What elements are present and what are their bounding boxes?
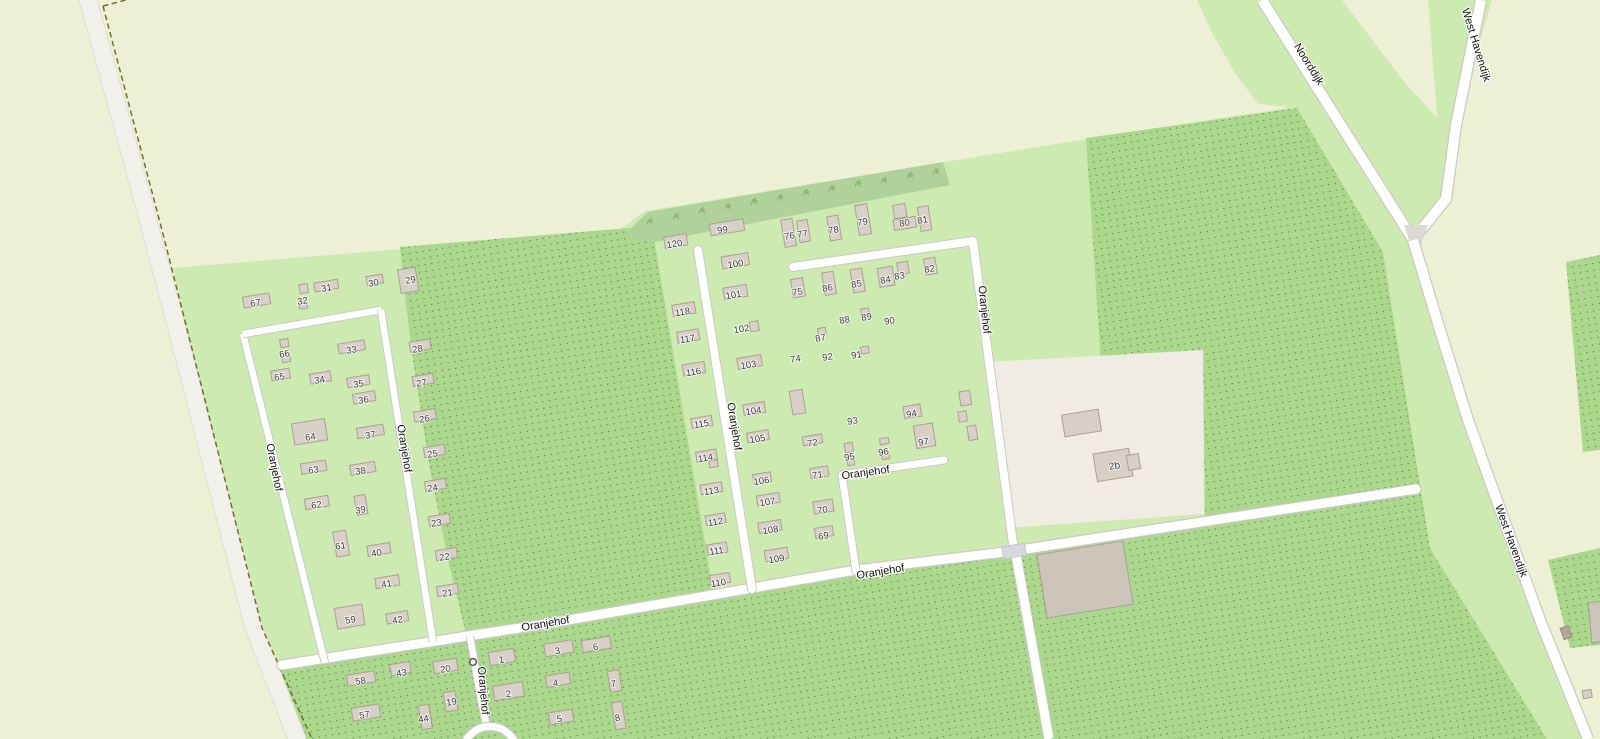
svg-text:70: 70 xyxy=(816,504,828,517)
svg-text:81: 81 xyxy=(916,214,928,227)
svg-text:26: 26 xyxy=(418,413,430,426)
svg-text:89: 89 xyxy=(860,311,872,324)
svg-text:28: 28 xyxy=(411,343,423,356)
svg-text:76: 76 xyxy=(783,230,795,243)
svg-text:77: 77 xyxy=(796,228,808,241)
svg-text:40: 40 xyxy=(370,547,382,560)
svg-text:39: 39 xyxy=(354,504,366,517)
svg-text:94: 94 xyxy=(905,408,917,421)
svg-text:58: 58 xyxy=(354,675,366,688)
svg-text:23: 23 xyxy=(430,517,442,530)
svg-text:67: 67 xyxy=(249,297,261,310)
svg-text:75: 75 xyxy=(791,286,803,299)
svg-text:88: 88 xyxy=(838,314,850,327)
svg-text:30: 30 xyxy=(367,277,379,290)
svg-text:82: 82 xyxy=(923,263,935,276)
svg-text:21: 21 xyxy=(441,587,453,600)
svg-text:25: 25 xyxy=(426,448,438,461)
svg-text:36: 36 xyxy=(357,394,369,407)
svg-text:29: 29 xyxy=(404,274,416,287)
svg-text:38: 38 xyxy=(354,465,366,478)
svg-text:27: 27 xyxy=(415,377,427,390)
svg-text:74: 74 xyxy=(789,353,801,366)
svg-text:33: 33 xyxy=(345,344,357,357)
svg-text:96: 96 xyxy=(877,446,889,459)
svg-text:79: 79 xyxy=(856,216,868,229)
svg-text:62: 62 xyxy=(310,499,322,512)
svg-text:87: 87 xyxy=(814,332,826,345)
svg-text:22: 22 xyxy=(438,551,450,564)
svg-text:97: 97 xyxy=(917,436,929,449)
svg-text:37: 37 xyxy=(364,429,376,442)
svg-text:61: 61 xyxy=(334,540,346,553)
svg-text:83: 83 xyxy=(893,270,905,283)
svg-text:32: 32 xyxy=(296,295,308,308)
svg-text:92: 92 xyxy=(821,351,833,364)
svg-text:86: 86 xyxy=(821,282,833,295)
svg-text:41: 41 xyxy=(380,578,392,591)
svg-text:66: 66 xyxy=(278,348,290,361)
svg-text:64: 64 xyxy=(304,431,316,444)
svg-text:85: 85 xyxy=(850,278,862,291)
svg-text:78: 78 xyxy=(827,224,839,237)
svg-text:31: 31 xyxy=(320,282,332,295)
svg-text:93: 93 xyxy=(846,415,858,428)
svg-text:2b: 2b xyxy=(1108,460,1121,473)
svg-text:57: 57 xyxy=(358,709,370,722)
svg-text:95: 95 xyxy=(843,451,855,464)
svg-text:65: 65 xyxy=(273,371,285,384)
svg-text:80: 80 xyxy=(898,217,910,230)
svg-text:99: 99 xyxy=(716,224,728,237)
svg-text:34: 34 xyxy=(313,374,325,387)
svg-text:19: 19 xyxy=(445,696,457,709)
svg-text:24: 24 xyxy=(426,482,438,495)
svg-text:72: 72 xyxy=(806,437,818,450)
svg-text:111: 111 xyxy=(709,545,725,558)
svg-text:43: 43 xyxy=(395,667,407,680)
svg-text:90: 90 xyxy=(883,315,895,328)
svg-text:20: 20 xyxy=(439,663,451,676)
svg-text:71: 71 xyxy=(811,469,823,482)
svg-text:84: 84 xyxy=(879,274,891,287)
svg-text:69: 69 xyxy=(817,530,829,543)
svg-text:35: 35 xyxy=(352,378,364,391)
svg-text:44: 44 xyxy=(417,713,429,726)
svg-text:91: 91 xyxy=(850,349,862,362)
svg-text:63: 63 xyxy=(307,464,319,477)
svg-text:42: 42 xyxy=(391,614,403,627)
svg-text:59: 59 xyxy=(344,614,356,627)
